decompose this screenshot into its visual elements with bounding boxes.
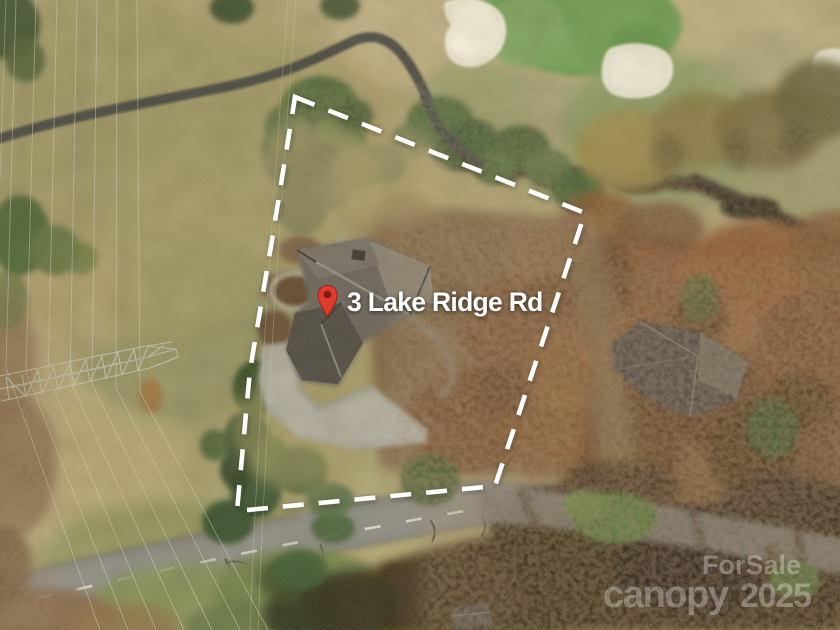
svg-text:canopy: canopy — [603, 574, 729, 616]
svg-text:3 Lake Ridge Rd: 3 Lake Ridge Rd — [347, 287, 543, 317]
svg-text:2025: 2025 — [740, 577, 811, 615]
